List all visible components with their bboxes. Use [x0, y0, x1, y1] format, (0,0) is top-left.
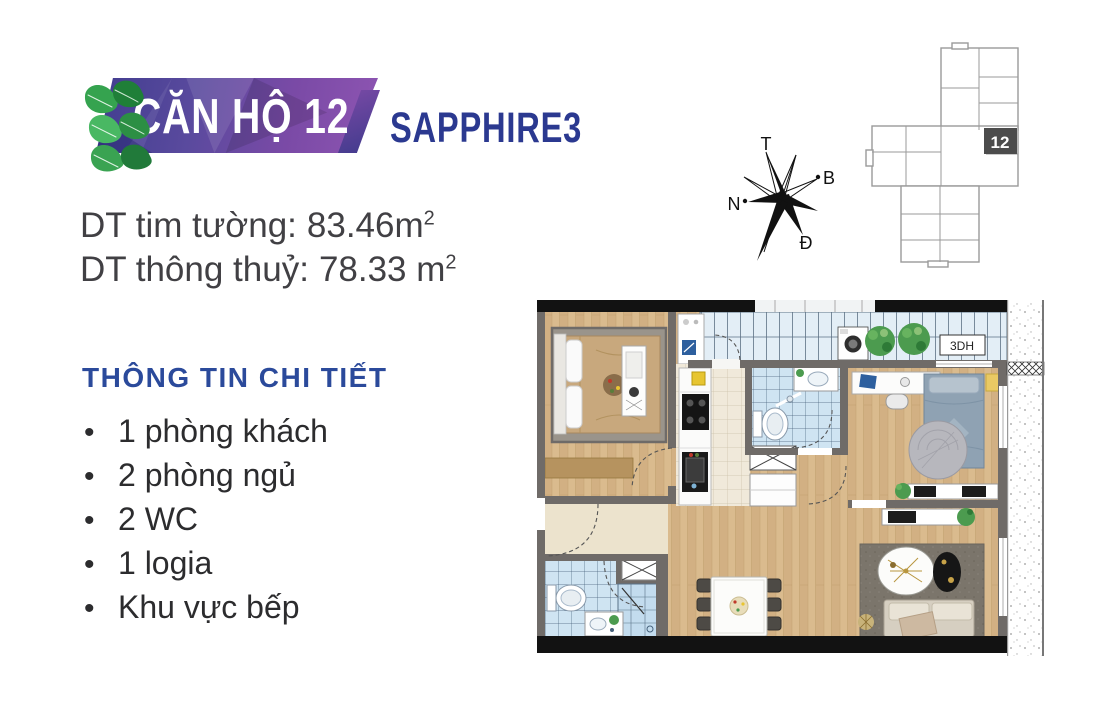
dresser	[622, 346, 646, 416]
area-tim-tuong: DT tim tường:83.46m2	[80, 206, 435, 246]
compass-label-right: B	[823, 168, 835, 188]
area-label: DT thông thuỷ:	[80, 250, 309, 289]
dining-set	[697, 577, 781, 636]
bullet-icon: •	[84, 411, 118, 454]
building-key-plan: 12	[862, 36, 1052, 268]
floor-plan: 3DH	[537, 295, 1047, 665]
dish	[692, 372, 705, 385]
list-item-label: 1 phòng khách	[118, 413, 328, 449]
kitchen-sink	[682, 452, 708, 492]
coffee-table	[878, 547, 934, 595]
room-loggia: 3DH	[700, 312, 1007, 362]
area-thong-thuy: DT thông thuỷ:78.33 m2	[80, 250, 457, 290]
list-item-label: 1 logia	[118, 545, 212, 581]
vanity-sink	[585, 612, 623, 636]
loggia-label: 3DH	[950, 339, 974, 353]
list-item-label: Khu vực bếp	[118, 589, 300, 625]
room-entry	[545, 504, 668, 556]
exterior-strip	[1007, 300, 1044, 656]
list-item-label: 2 phòng ngủ	[118, 457, 296, 493]
fridge	[750, 474, 796, 506]
side-table	[933, 552, 961, 592]
toilet	[547, 585, 586, 611]
room-bathroom-1	[750, 366, 840, 450]
unit-number-label: 12	[991, 133, 1010, 152]
compass-label-bottom: Đ	[800, 233, 813, 253]
round-rug	[909, 421, 967, 479]
cooktop	[682, 394, 709, 430]
bullet-icon: •	[84, 455, 118, 498]
room-kitchen	[676, 364, 750, 506]
area-sup: 2	[445, 251, 456, 273]
details-list: •1 phòng khách •2 phòng ngủ •2 WC •1 log…	[84, 410, 328, 630]
floor-plant	[858, 614, 874, 630]
washing-machine	[838, 327, 868, 360]
list-item: •1 logia	[84, 542, 328, 586]
compass-rose-icon: T B N Đ	[712, 126, 867, 276]
area-label: DT tim tường:	[80, 206, 297, 245]
hall-cabinet	[678, 314, 704, 364]
low-cabinet	[545, 458, 633, 478]
list-item: •2 phòng ngủ	[84, 454, 328, 498]
details-heading: THÔNG TIN CHI TIẾT	[82, 362, 387, 394]
leaf-decoration-icon	[82, 76, 170, 172]
room-wc-2	[545, 556, 668, 637]
list-item: •1 phòng khách	[84, 410, 328, 454]
list-item: •Khu vực bếp	[84, 586, 328, 630]
tv-cabinet-bedroom2	[895, 483, 998, 499]
list-item: •2 WC	[84, 498, 328, 542]
bullet-icon: •	[84, 587, 118, 630]
compass-label-top: T	[761, 134, 772, 154]
area-value: 78.33 m	[319, 250, 445, 289]
brochure-page: { "banner": { "unit_title": "CĂN HỘ 12",…	[0, 0, 1102, 727]
bullet-icon: •	[84, 499, 118, 542]
area-value: 83.46m	[307, 206, 424, 245]
list-item-label: 2 WC	[118, 501, 198, 537]
compass-label-left: N	[728, 194, 741, 214]
shower	[618, 584, 660, 637]
tv-cabinet-living	[882, 508, 975, 526]
bullet-icon: •	[84, 543, 118, 586]
project-name: SAPPHIRE3	[390, 104, 582, 153]
area-sup: 2	[424, 207, 435, 229]
sofa	[884, 600, 974, 640]
